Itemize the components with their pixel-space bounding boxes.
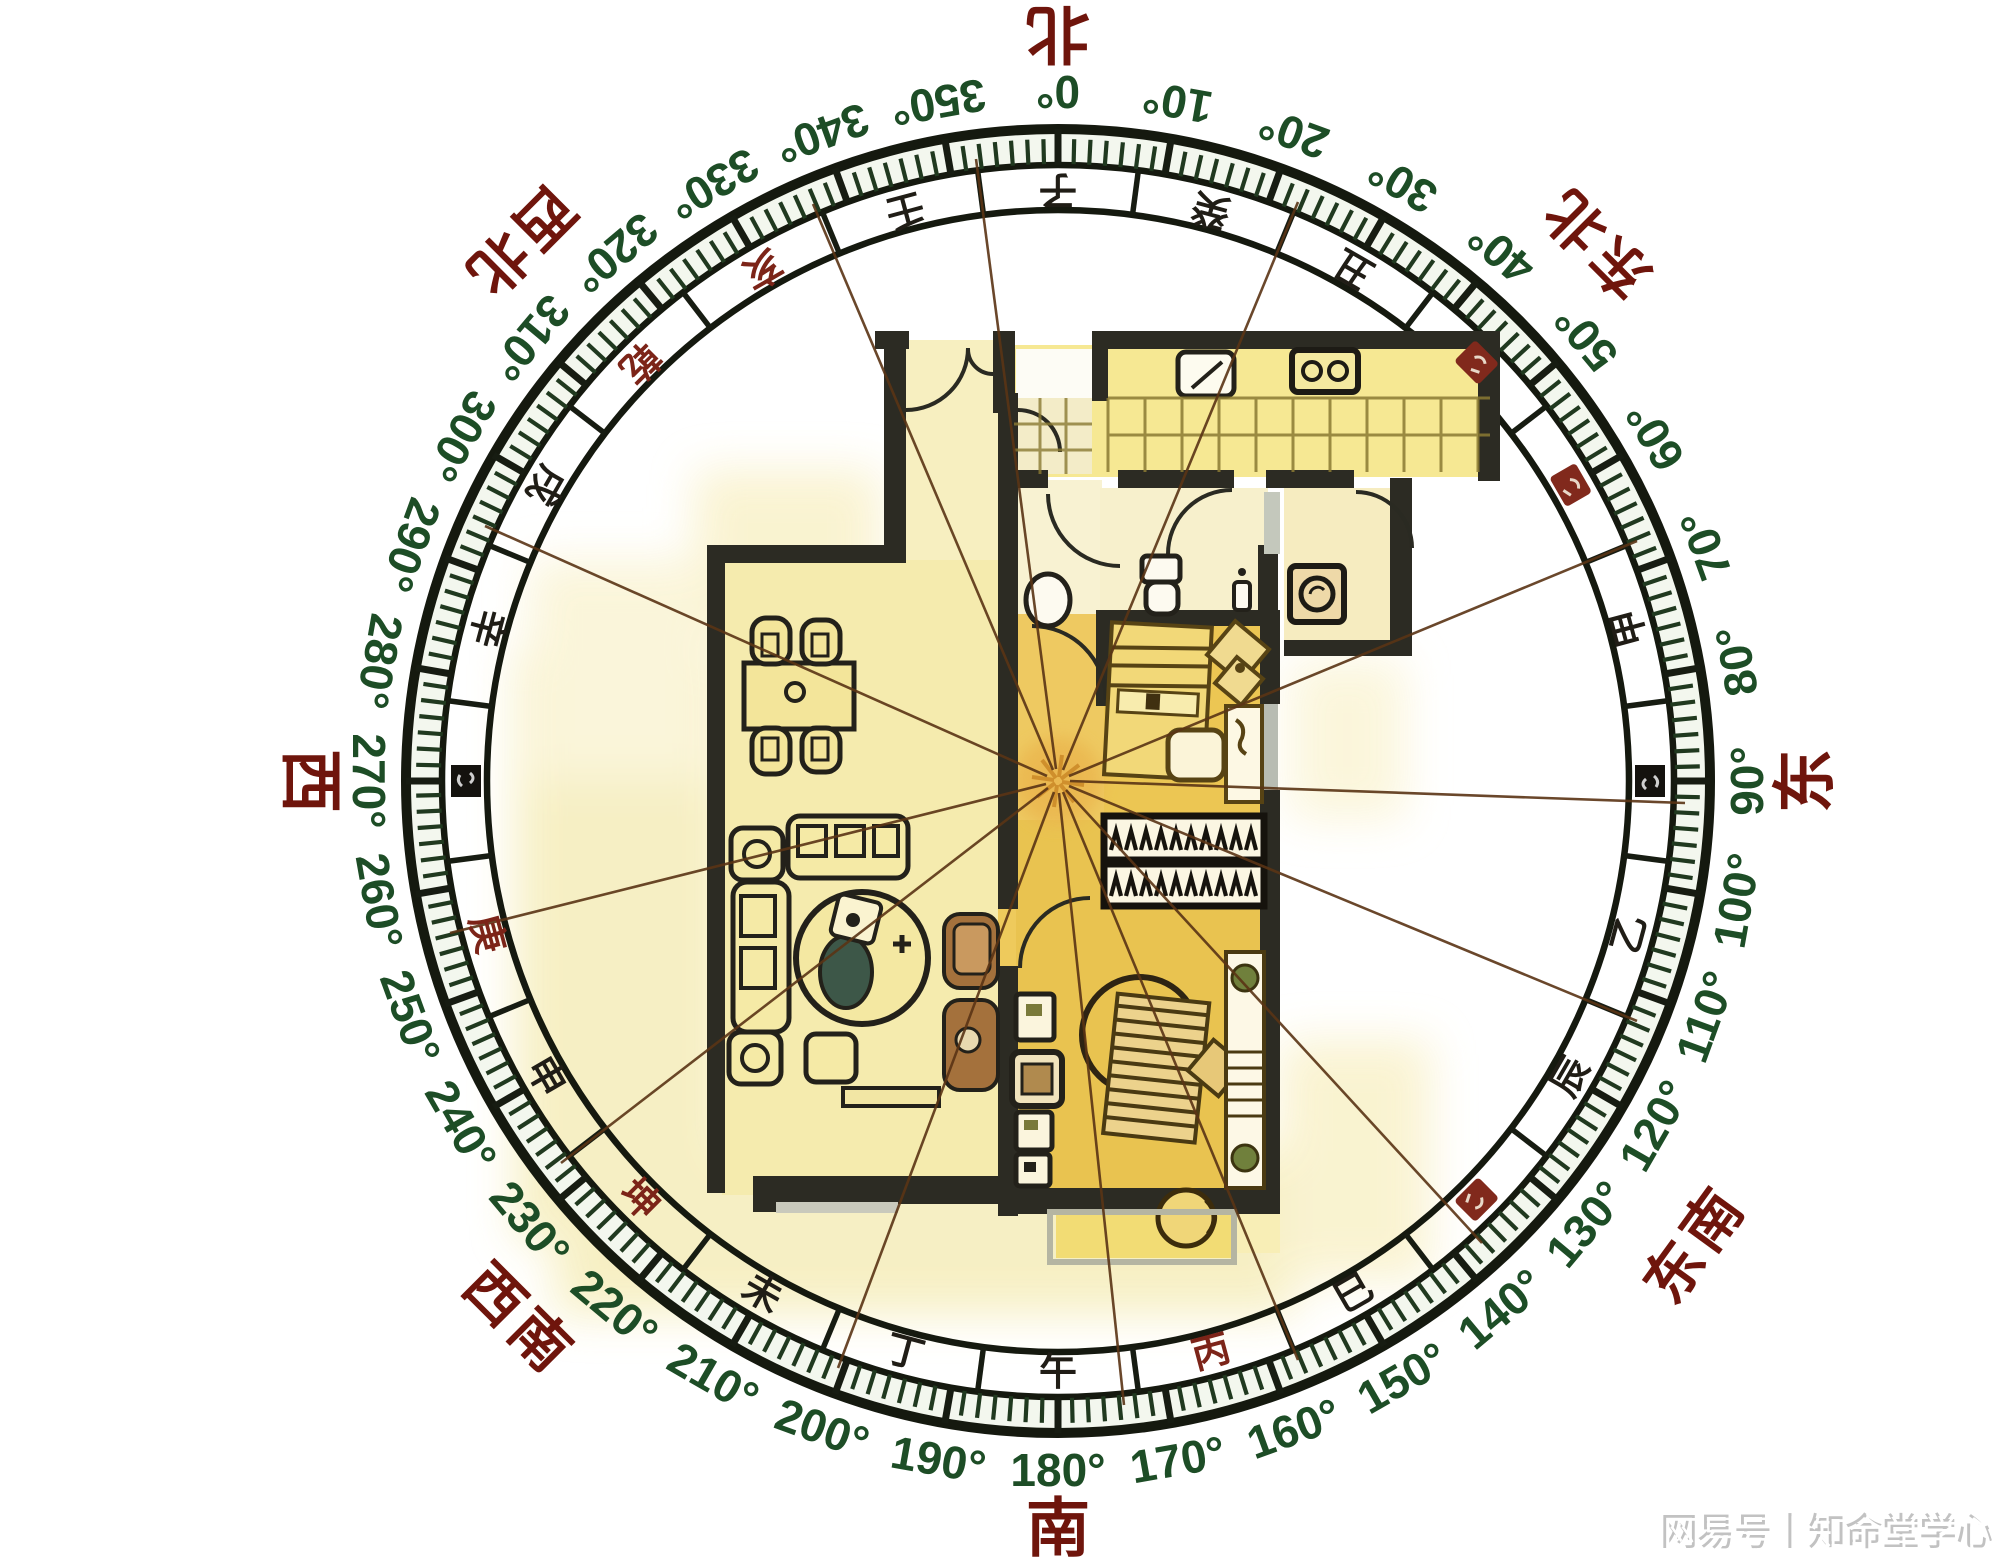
- svg-text:网易号丨知命堂学心: 网易号丨知命堂学心: [1663, 1515, 1996, 1557]
- svg-text:午: 午: [1039, 1352, 1077, 1394]
- svg-text:子: 子: [1039, 168, 1077, 210]
- svg-text:0°: 0°: [1036, 66, 1080, 118]
- svg-text:西: 西: [275, 749, 346, 813]
- svg-text:南: 南: [1026, 1494, 1090, 1564]
- svg-text:270°: 270°: [343, 733, 395, 828]
- svg-text:90°: 90°: [1721, 746, 1773, 816]
- svg-text:东: 东: [1771, 749, 1842, 813]
- svg-text:北: 北: [1026, 0, 1090, 69]
- svg-text:180°: 180°: [1010, 1444, 1105, 1496]
